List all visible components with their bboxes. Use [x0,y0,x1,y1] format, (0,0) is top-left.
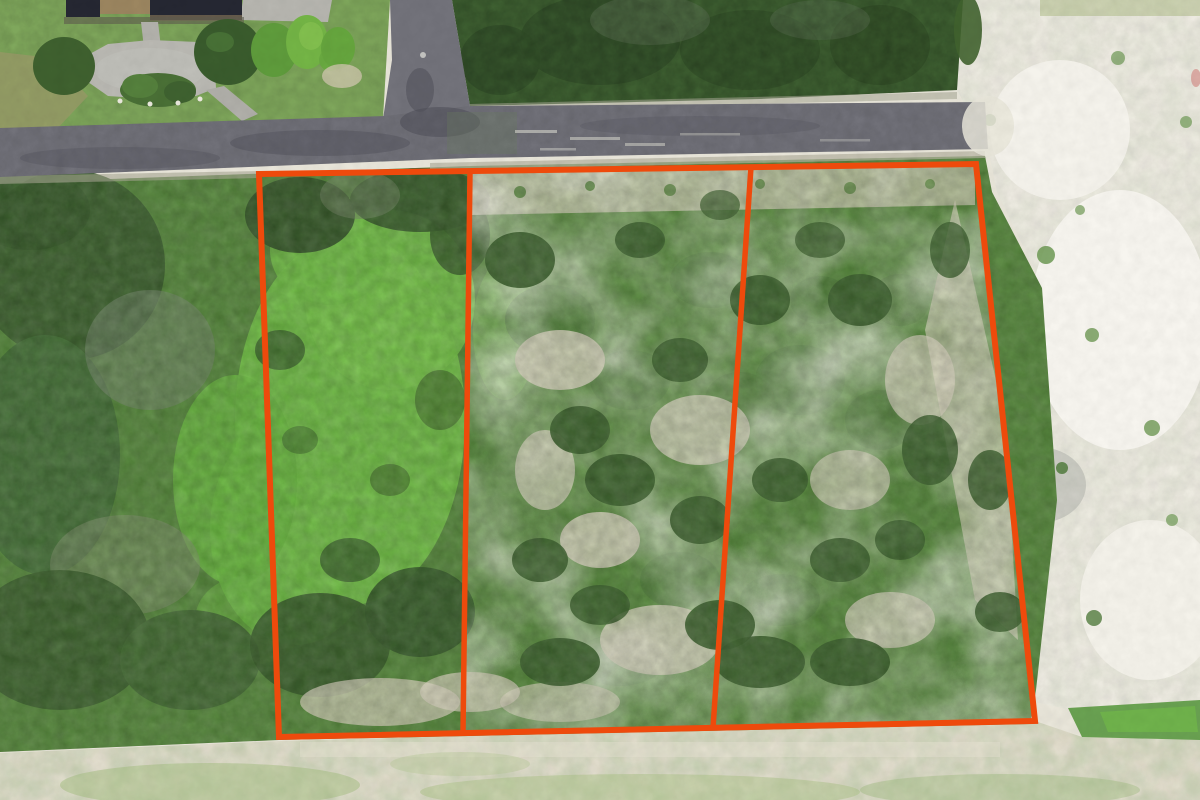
photo-grain-overall [0,0,1200,800]
aerial-scene-svg [0,0,1200,800]
terrain-layer [0,0,1200,800]
aerial-lot-photo [0,0,1200,800]
